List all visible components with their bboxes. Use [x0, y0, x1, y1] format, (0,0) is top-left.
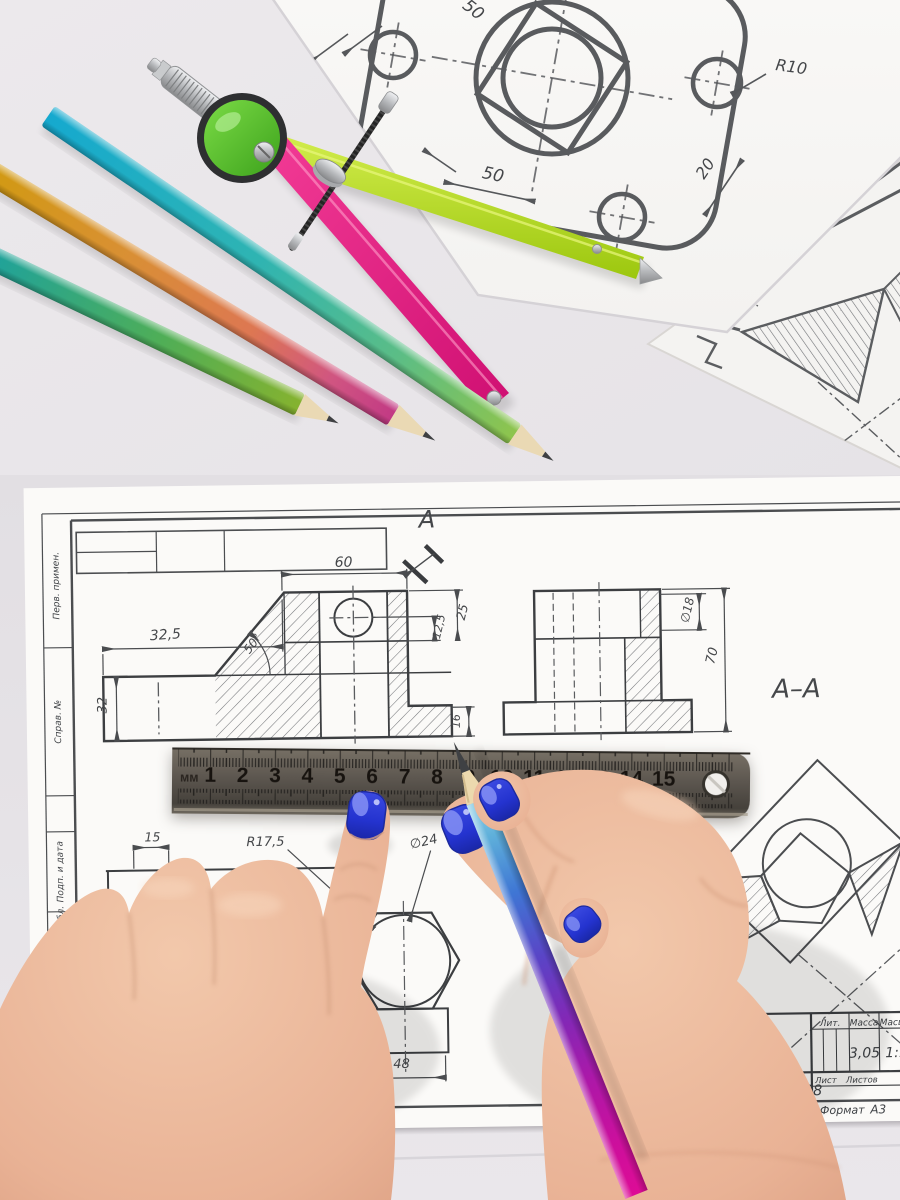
hands — [0, 0, 900, 1200]
pencil-lead-tip — [449, 740, 471, 775]
